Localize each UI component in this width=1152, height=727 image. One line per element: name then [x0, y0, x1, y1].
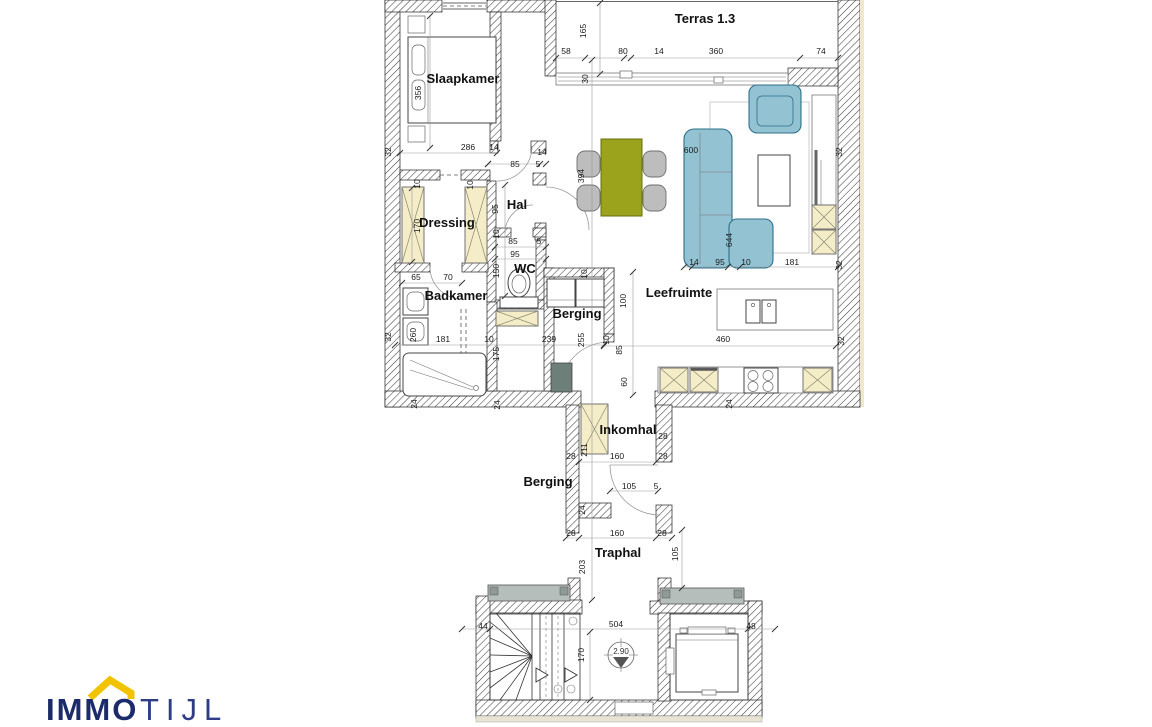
- nightstand: [408, 16, 425, 33]
- dimension-label: 80: [618, 46, 628, 56]
- room-label-badkamer: Badkamer: [425, 288, 488, 303]
- landing-slab: [660, 588, 744, 604]
- dimension-label: 181: [436, 334, 450, 344]
- room-label-dressing: Dressing: [419, 215, 475, 230]
- dimension-label: 28: [658, 431, 668, 441]
- dimension-label: 360: [709, 46, 723, 56]
- dimension-label: 100: [618, 294, 628, 308]
- dimension-label: 239: [542, 334, 556, 344]
- dimension-label: 28: [657, 528, 667, 538]
- dimension-label: 175: [491, 347, 501, 361]
- dimension-label: 5: [536, 159, 541, 169]
- dimension-label: 95: [490, 204, 500, 214]
- floor-plan-page: 2.90 SlaapkamerTerras 1.3DressingHalWCBa…: [0, 0, 1152, 727]
- dimension-label: 32: [383, 332, 393, 342]
- dimension-label: 14: [537, 147, 547, 157]
- dimension-label: 5: [654, 481, 659, 491]
- boiler: [551, 363, 572, 392]
- dimension-label: 10: [412, 179, 422, 189]
- room-label-traphal: Traphal: [595, 545, 641, 560]
- cooktop: [744, 368, 778, 393]
- dimension-label: 28: [658, 451, 668, 461]
- dimension-label: 105: [622, 481, 636, 491]
- dimension-label: 24: [724, 399, 734, 409]
- dimension-label: 170: [412, 219, 422, 233]
- dimension-label: 356: [413, 86, 423, 100]
- tv-unit: [812, 95, 836, 222]
- dimension-label: 70: [443, 272, 453, 282]
- dimension-label: 170: [576, 648, 586, 662]
- room-label-hal: Hal: [507, 197, 527, 212]
- dimension-label: 32: [836, 336, 846, 346]
- washer-dryer: [547, 279, 604, 307]
- kitchen-counter: [658, 367, 833, 393]
- coffee-table: [758, 155, 790, 206]
- dimension-label: 28: [566, 451, 576, 461]
- dimension-label: 105: [670, 547, 680, 561]
- dimension-label: 10: [491, 229, 501, 239]
- dimension-label: 10: [579, 269, 589, 279]
- dimension-label: 24: [492, 400, 502, 410]
- dimension-label: 286: [461, 142, 475, 152]
- dimension-label: 32: [834, 147, 844, 157]
- dimension-label: 10: [741, 257, 751, 267]
- dimension-label: 5: [537, 236, 542, 246]
- elevator: [666, 613, 748, 700]
- dimension-label: 65: [411, 272, 421, 282]
- dimension-label: 504: [609, 619, 623, 629]
- dimension-label: 160: [610, 528, 624, 538]
- dimension-label: 32: [383, 147, 393, 157]
- shower: [403, 353, 486, 396]
- floor-plan-canvas: 2.90 SlaapkamerTerras 1.3DressingHalWCBa…: [0, 0, 1152, 727]
- dimension-label: 48: [746, 621, 756, 631]
- room-label-slaapkamer: Slaapkamer: [427, 71, 500, 86]
- dimension-label: 30: [580, 74, 590, 84]
- appliance-column: [812, 205, 836, 254]
- dimension-label: 150: [491, 264, 501, 278]
- dimension-label: 74: [816, 46, 826, 56]
- dimension-label: 95: [510, 249, 520, 259]
- logo-text-tijl: TIJL: [140, 692, 228, 727]
- dimension-label: 10: [465, 180, 475, 190]
- dimension-label: 260: [408, 328, 418, 342]
- dimension-label: 644: [724, 233, 734, 247]
- dimension-label: 181: [785, 257, 799, 267]
- dimension-label: 85: [614, 345, 624, 355]
- dimension-label: 28: [566, 528, 576, 538]
- dining-table: [601, 139, 642, 216]
- level-marker: 2.90: [604, 638, 638, 672]
- nightstand: [408, 126, 425, 142]
- dimension-label: 85: [508, 236, 518, 246]
- dimension-label: 211: [579, 443, 589, 457]
- dimension-label: 24: [577, 505, 587, 515]
- dimension-label: 60: [619, 377, 629, 387]
- room-label-leefruimte: Leefruimte: [646, 285, 712, 300]
- room-label-wc: WC: [514, 261, 536, 276]
- dimension-label: 10: [484, 334, 494, 344]
- dimension-label: 24: [409, 399, 419, 409]
- dimension-label: 255: [576, 333, 586, 347]
- room-label-terras: Terras 1.3: [675, 11, 735, 26]
- dimension-label: 44: [478, 621, 488, 631]
- level-value: 2.90: [613, 647, 629, 656]
- dimension-label: 14: [489, 142, 499, 152]
- dimension-label: 160: [610, 451, 624, 461]
- room-label-berging-2: Berging: [523, 474, 572, 489]
- dimension-label: 14: [689, 257, 699, 267]
- stairs: [490, 613, 580, 700]
- dimension-label: 394: [576, 169, 586, 183]
- dimension-label: 32: [834, 260, 844, 270]
- dimension-label: 95: [715, 257, 725, 267]
- immo-tijl-logo: IMMO TIJL: [46, 692, 266, 726]
- landing-slab: [488, 585, 570, 601]
- sliding-door: [556, 71, 788, 85]
- dimension-label: 10: [601, 335, 611, 345]
- bottom-opening: [615, 702, 653, 714]
- logo-text-immo: IMMO: [46, 692, 138, 727]
- dimension-label: 85: [510, 159, 520, 169]
- dimension-label: 14: [654, 46, 664, 56]
- duct-shaft: [496, 311, 538, 326]
- dimension-label: 58: [561, 46, 571, 56]
- room-label-berging-1: Berging: [552, 306, 601, 321]
- room-label-inkomhal: Inkomhal: [599, 422, 656, 437]
- dimension-label: 203: [577, 560, 587, 574]
- armchair: [749, 85, 801, 133]
- dimension-label: 165: [578, 24, 588, 38]
- kitchen-island: [717, 289, 833, 330]
- dimension-label: 460: [716, 334, 730, 344]
- dimension-label: 600: [684, 145, 698, 155]
